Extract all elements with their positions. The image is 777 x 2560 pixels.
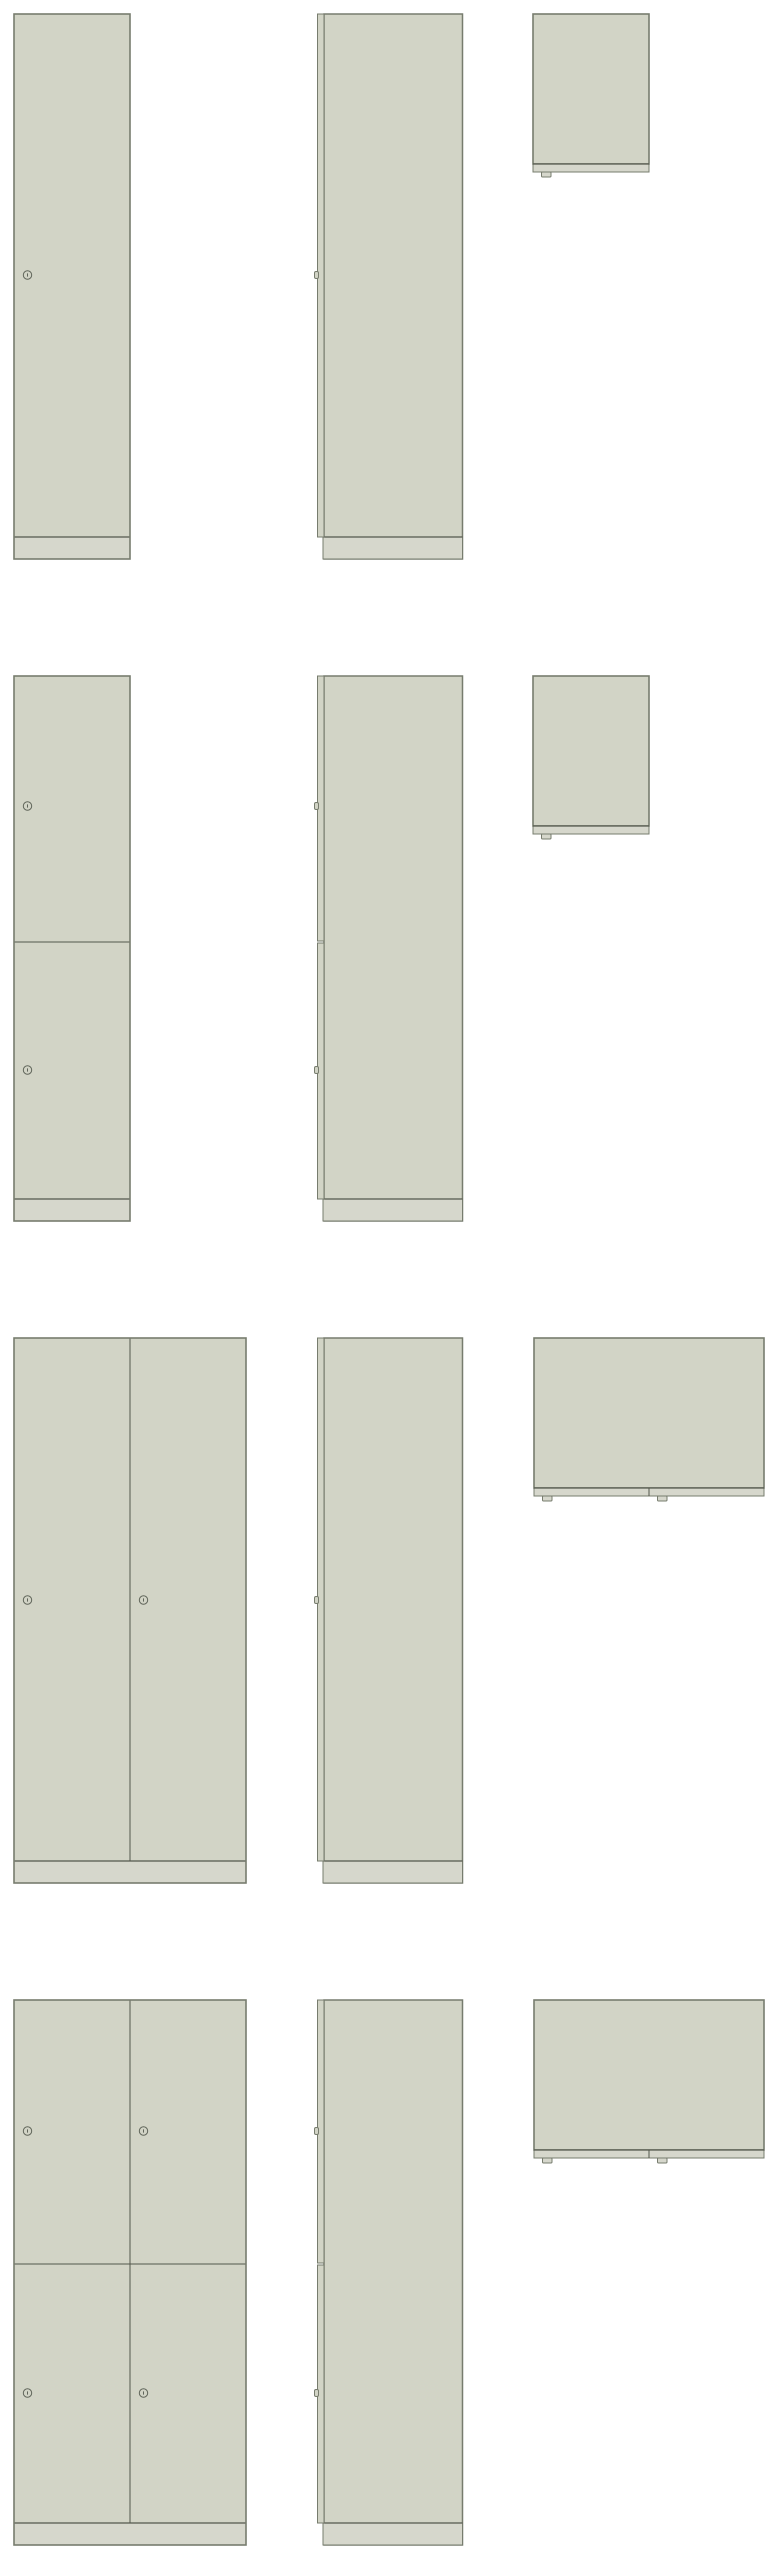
row-locker-1x2 xyxy=(14,676,649,1221)
row-locker-2x2 xyxy=(14,2000,764,2545)
side-plinth xyxy=(323,2523,463,2545)
top-lock-cylinder xyxy=(543,1496,553,1501)
top-view-locker-2x2 xyxy=(534,2000,764,2163)
top-body xyxy=(533,14,649,164)
front-view-locker-2x2 xyxy=(14,2000,246,2545)
top-view-locker-2x1 xyxy=(534,1338,764,1501)
side-view-locker-2x2 xyxy=(315,2000,463,2545)
side-plinth xyxy=(323,1861,463,1883)
side-lock-cylinder xyxy=(315,272,319,279)
side-lock-cylinder xyxy=(315,803,319,810)
side-view-locker-2x1 xyxy=(315,1338,463,1883)
top-lock-cylinder xyxy=(543,2158,553,2163)
top-body xyxy=(534,2000,764,2150)
side-body xyxy=(324,1338,463,1883)
lock-icon xyxy=(23,271,31,279)
front-plinth xyxy=(14,1861,246,1883)
lock-icon xyxy=(139,2127,147,2135)
side-body xyxy=(324,14,463,559)
top-view-locker-1x2 xyxy=(533,676,649,839)
top-lock-cylinder xyxy=(658,2158,668,2163)
side-lock-cylinder xyxy=(315,2128,319,2135)
side-plinth xyxy=(323,537,463,559)
row-locker-1x1 xyxy=(14,14,649,559)
side-view-locker-1x1 xyxy=(315,14,463,559)
top-body xyxy=(533,676,649,826)
front-body xyxy=(14,14,130,559)
top-lock-cylinder xyxy=(542,172,552,177)
front-plinth xyxy=(14,1199,130,1221)
lock-icon xyxy=(23,1066,31,1074)
top-body xyxy=(534,1338,764,1488)
front-plinth xyxy=(14,2523,246,2545)
lock-icon xyxy=(139,2389,147,2397)
top-lock-cylinder xyxy=(542,834,552,839)
lock-icon xyxy=(23,2127,31,2135)
top-door-band xyxy=(533,826,649,834)
lock-icon xyxy=(139,1596,147,1604)
front-view-locker-1x1 xyxy=(14,14,130,559)
lock-icon xyxy=(23,802,31,810)
side-lock-cylinder xyxy=(315,2390,319,2397)
side-view-locker-1x2 xyxy=(315,676,463,1221)
top-door-band xyxy=(533,164,649,172)
front-view-locker-2x1 xyxy=(14,1338,246,1883)
side-body xyxy=(324,676,463,1221)
side-lock-cylinder xyxy=(315,1067,319,1074)
drawing-sheet xyxy=(0,0,777,2560)
row-locker-2x1 xyxy=(14,1338,764,1883)
front-view-locker-1x2 xyxy=(14,676,130,1221)
side-body xyxy=(324,2000,463,2545)
front-body xyxy=(14,676,130,1221)
lock-icon xyxy=(23,2389,31,2397)
drawing-canvas xyxy=(0,0,777,2560)
lock-icon xyxy=(23,1596,31,1604)
side-lock-cylinder xyxy=(315,1597,319,1604)
front-plinth xyxy=(14,537,130,559)
top-view-locker-1x1 xyxy=(533,14,649,177)
side-plinth xyxy=(323,1199,463,1221)
top-lock-cylinder xyxy=(658,1496,668,1501)
